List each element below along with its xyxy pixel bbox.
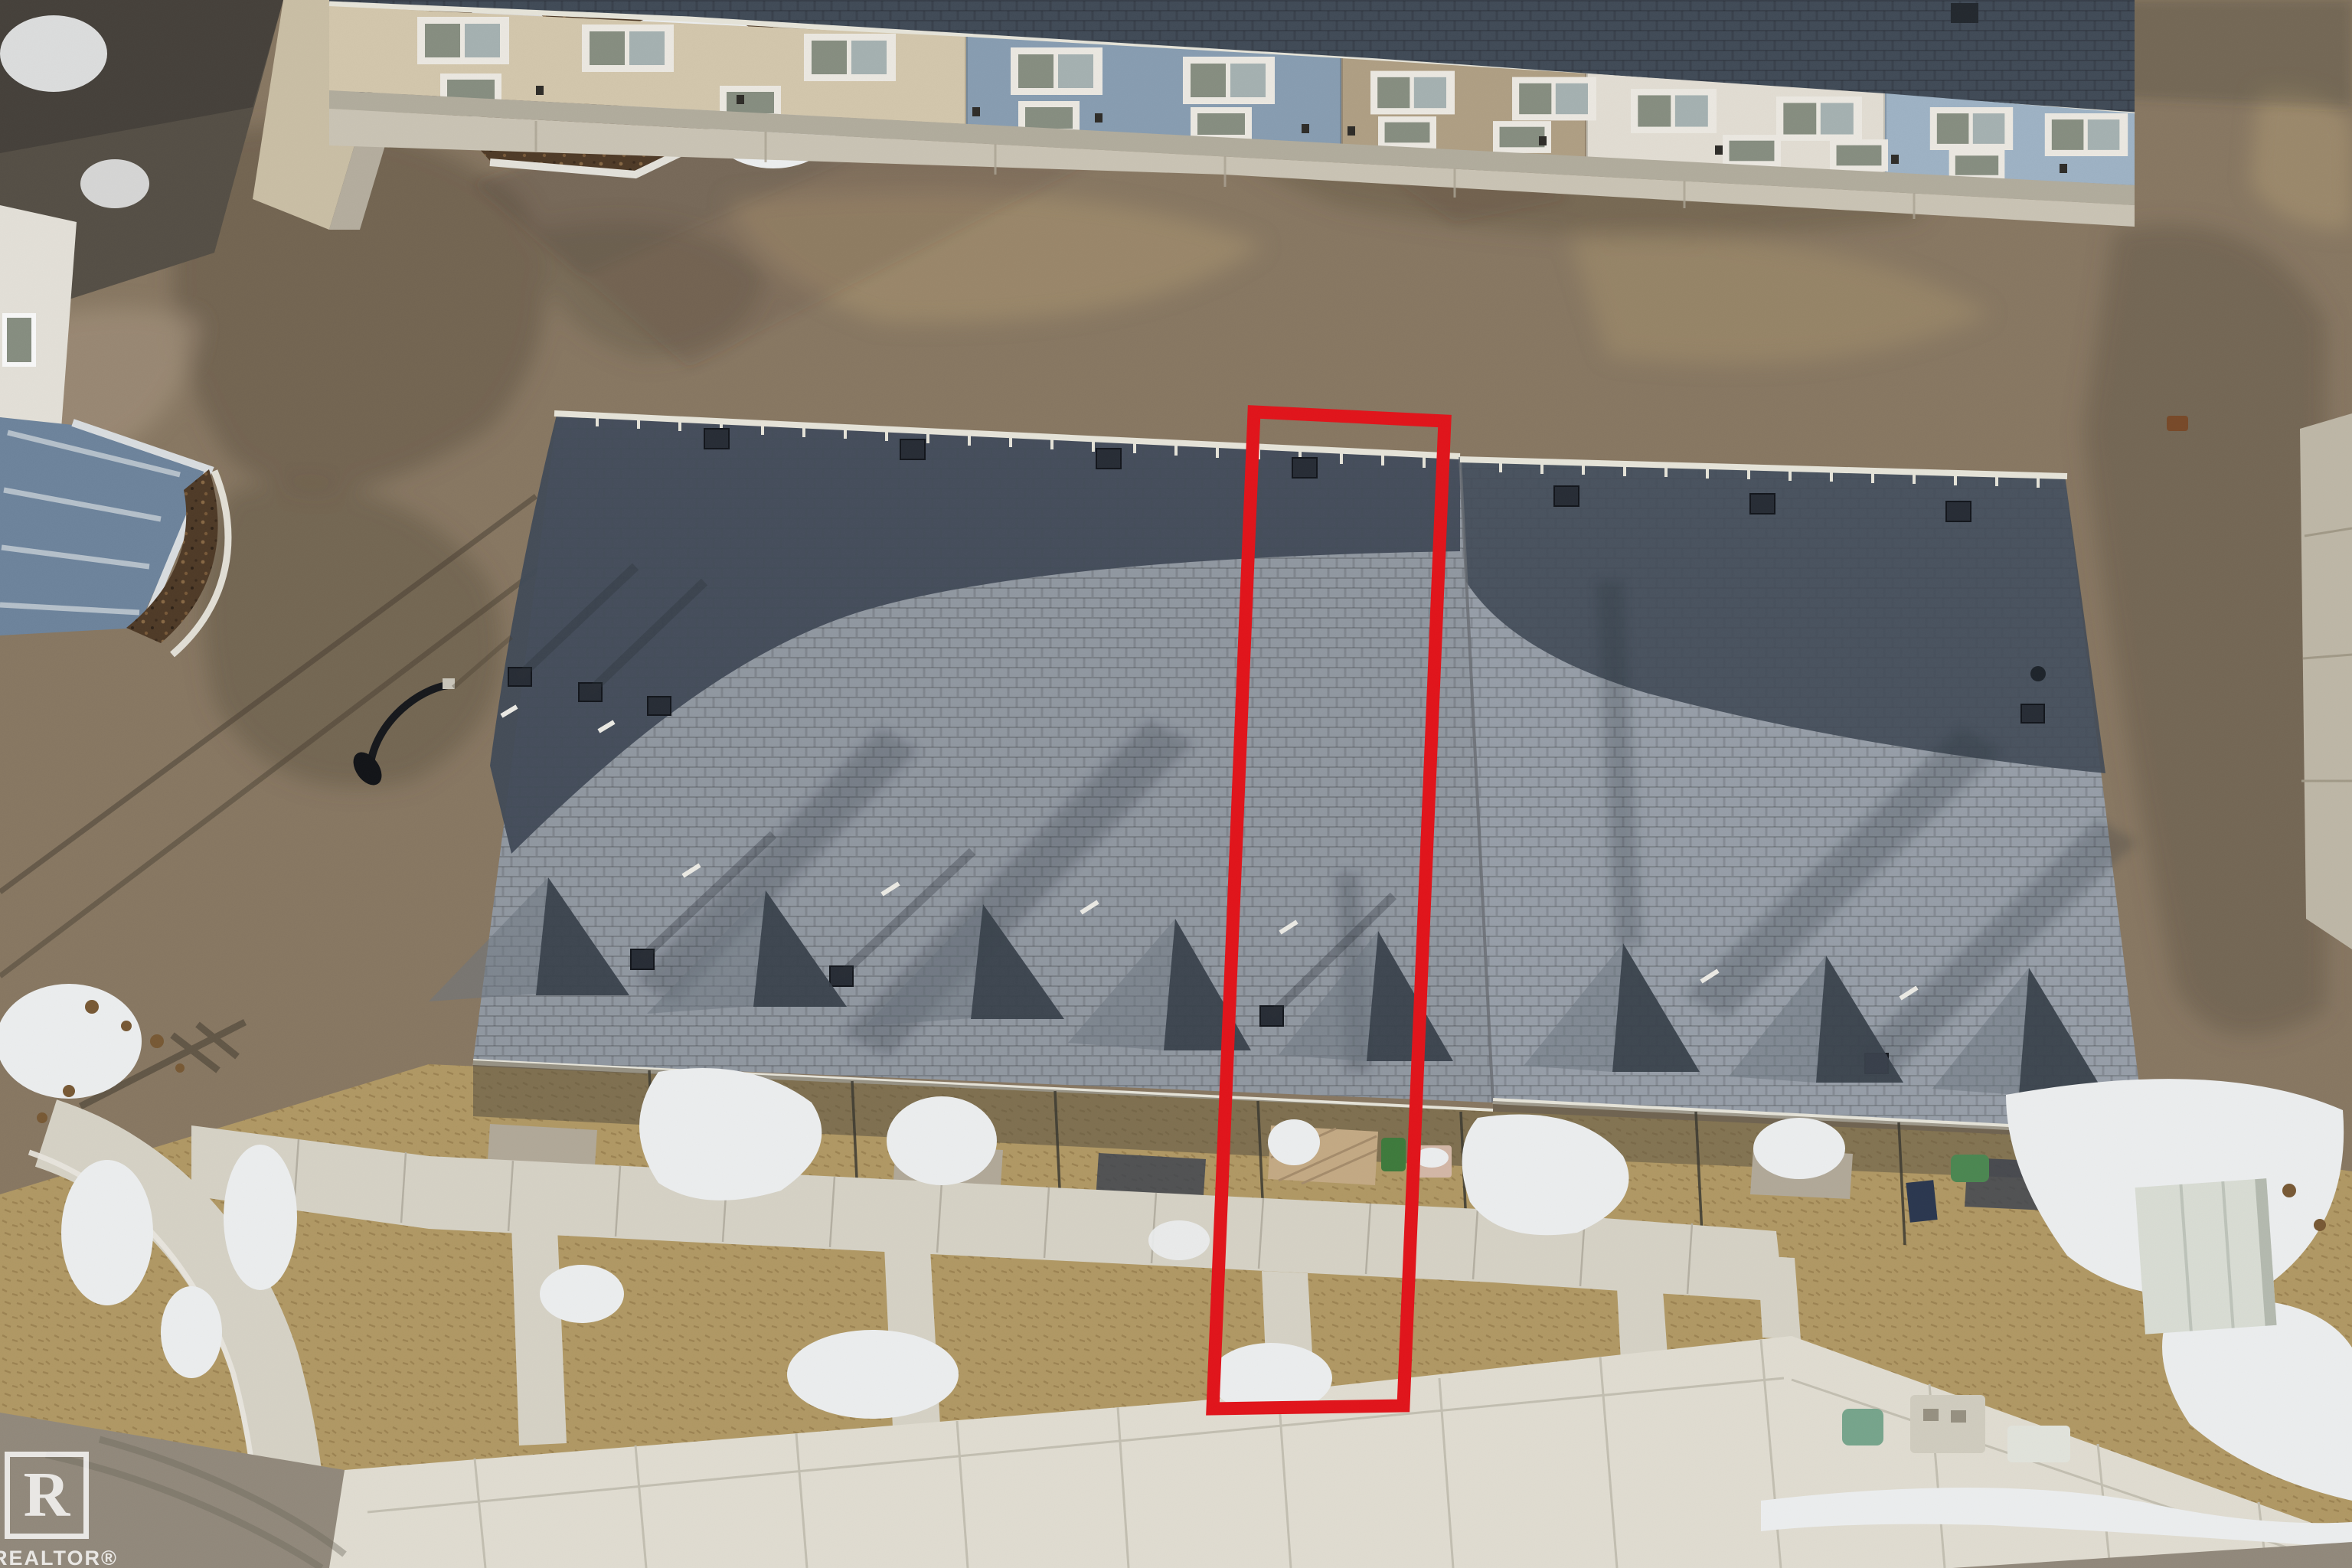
aerial-photo-canvas — [0, 0, 2352, 1568]
aerial-photo: R REALTOR® — [0, 0, 2352, 1568]
photo-grain-overlay — [0, 0, 2352, 1568]
